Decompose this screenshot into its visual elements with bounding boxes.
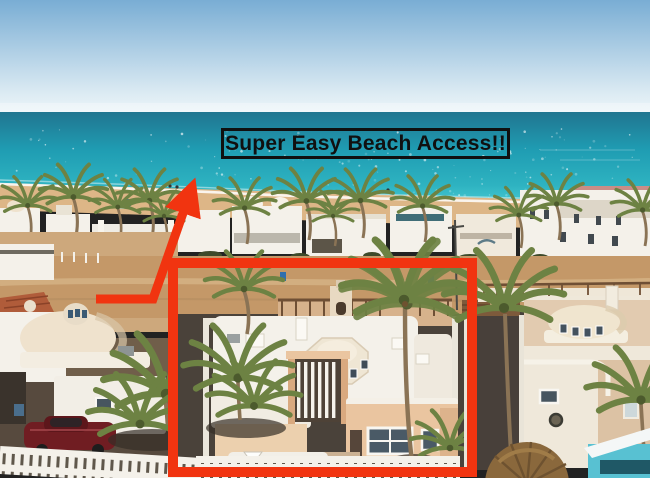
blue-bin — [14, 404, 24, 416]
headline-text: Super Easy Beach Access!! — [225, 132, 506, 156]
dolphin-wall-villa — [456, 214, 516, 256]
swimmer — [175, 185, 178, 188]
aerial-photo — [0, 0, 650, 478]
chimney — [24, 300, 36, 312]
warehouse — [0, 244, 54, 280]
pergola — [286, 351, 350, 424]
dome-cupola — [63, 303, 89, 325]
ac-unit — [227, 334, 240, 343]
listing-photo: Super Easy Beach Access!! — [0, 0, 650, 478]
headline-label: Super Easy Beach Access!! — [221, 128, 510, 159]
sky — [0, 0, 650, 114]
porthole — [550, 414, 562, 426]
window — [540, 390, 558, 403]
chimney — [296, 318, 307, 340]
roof-vent — [416, 354, 429, 364]
garage-opening — [0, 372, 26, 424]
